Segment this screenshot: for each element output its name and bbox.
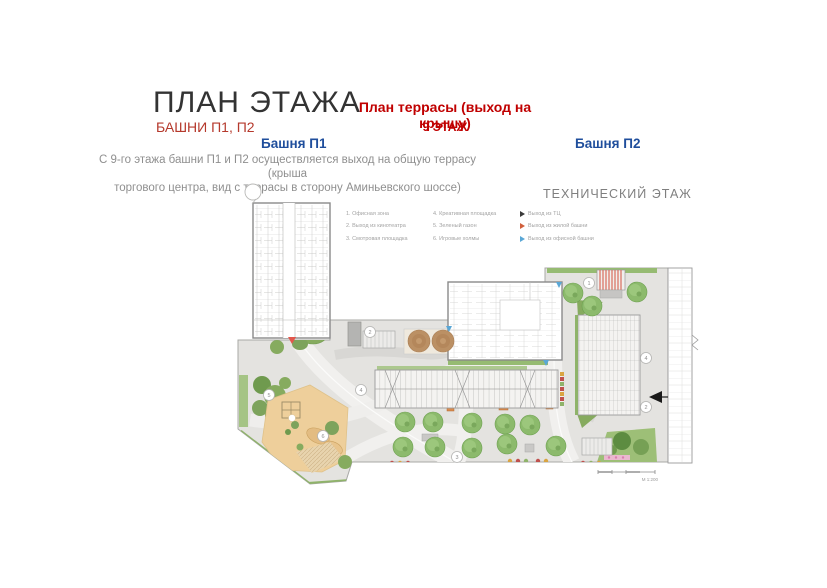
callout: 5 [264,390,275,401]
callout: 2 [365,327,376,338]
skylight-structure [575,315,640,415]
svg-text:3: 3 [455,455,458,461]
svg-text:М 1:200: М 1:200 [642,477,659,482]
pergola-colored-squares [560,372,564,406]
pergola [375,370,564,408]
callout: 1 [584,278,595,289]
hedge [239,375,248,427]
mid-building-footprint [448,282,562,360]
grid-axis-bubble [245,184,261,204]
svg-text:1: 1 [587,281,590,287]
svg-text:5: 5 [267,393,270,399]
scale-bar: М 1:200 [598,470,658,482]
red-pergola [597,270,625,298]
callout: 3 [452,452,463,463]
tower-p1-footprint [253,203,330,338]
svg-text:2: 2 [368,330,371,336]
svg-text:2: 2 [644,405,647,411]
hedge [448,360,548,365]
callout: 4 [641,353,652,364]
tower-p2-technical-strip [668,268,698,463]
svg-text:4: 4 [359,388,362,394]
floor-plan-canvas: 1 2 3 4 2 5 4 6 М 1:200 [0,0,827,588]
svg-text:4: 4 [644,356,647,362]
svg-text:6: 6 [321,434,324,440]
callout: 6 [318,431,329,442]
callout: 4 [356,385,367,396]
callout: 2 [641,402,652,413]
